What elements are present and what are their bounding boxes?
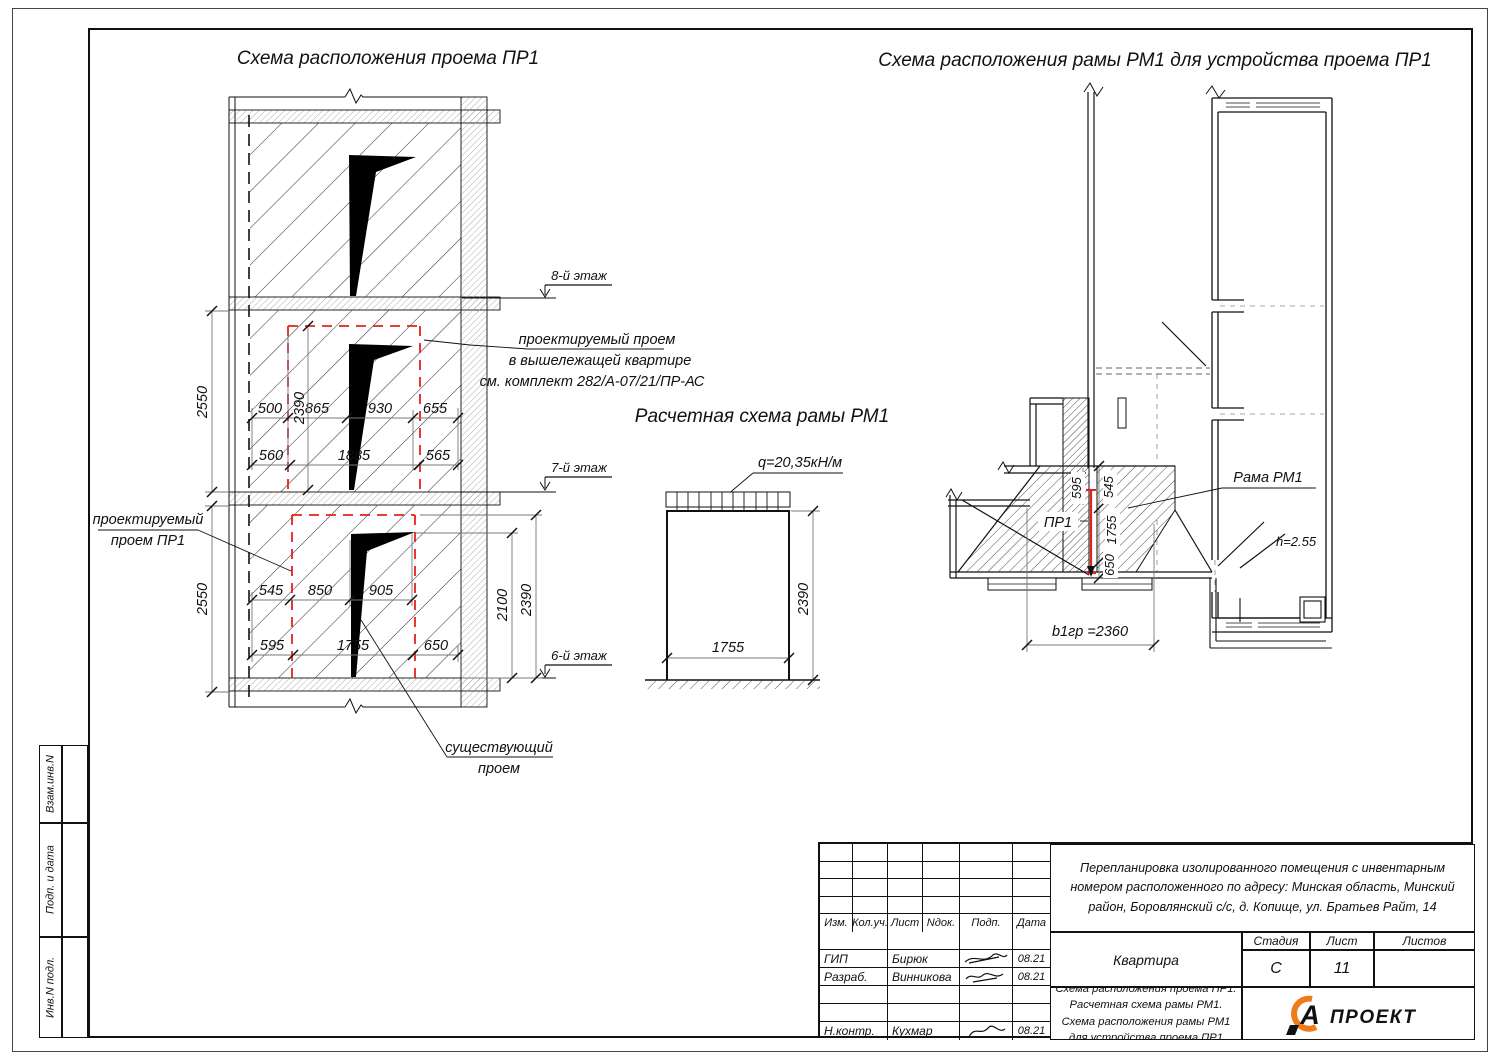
sheets-header: Листов	[1374, 932, 1475, 950]
sign-date: 08.21	[1013, 1022, 1050, 1040]
strip-label: Инв.N подл.	[40, 938, 61, 1037]
col-header: Подп.	[960, 914, 1013, 932]
col-header: Дата	[1013, 914, 1050, 932]
strip-label-box: Инв.N подл.	[39, 937, 62, 1038]
person-name: Винникова	[888, 968, 960, 986]
strip-empty-box	[62, 745, 88, 823]
signature-table: ГИП Бирюк 08.21 Разраб. Винникова 08.21 …	[820, 932, 1050, 1040]
signature	[960, 950, 1013, 968]
logo-letter: А	[1299, 1000, 1320, 1030]
col-header: Кол.уч.	[853, 914, 888, 932]
strip-empty-box	[62, 823, 88, 937]
drawing-sheet: Взам.инв.N Подп. и дата Инв.N подл. text…	[0, 0, 1500, 1061]
title-block: Изм. Кол.уч. Лист Nдок. Подп. Дата ГИП Б…	[818, 842, 1473, 1038]
company-logo: А ПРОЕКТ	[1242, 987, 1475, 1040]
signature	[960, 968, 1013, 986]
sheet-number: 11	[1310, 950, 1374, 987]
col-header: Изм.	[820, 914, 853, 932]
person-name: Кухмар	[888, 1022, 960, 1040]
col-header: Лист	[888, 914, 923, 932]
role: Разраб.	[820, 968, 888, 986]
sign-date: 08.21	[1013, 968, 1050, 986]
signature	[960, 1022, 1013, 1040]
col-header: Nдок.	[923, 914, 960, 932]
sheet-title: Схема расположения проема ПР1. Расчетная…	[1050, 987, 1242, 1040]
person-name: Бирюк	[888, 950, 960, 968]
strip-empty-box	[62, 937, 88, 1038]
stage-header: Стадия	[1242, 932, 1310, 950]
strip-label-box: Подп. и дата	[39, 823, 62, 937]
sign-date: 08.21	[1013, 950, 1050, 968]
role: ГИП	[820, 950, 888, 968]
revision-table: Изм. Кол.уч. Лист Nдок. Подп. Дата	[820, 844, 1050, 932]
stage-value: С	[1242, 950, 1310, 987]
role: Н.контр.	[820, 1022, 888, 1040]
strip-label: Взам.инв.N	[40, 746, 61, 822]
strip-label-box: Взам.инв.N	[39, 745, 62, 823]
logo-text: ПРОЕКТ	[1330, 1007, 1416, 1028]
sheets-total	[1374, 950, 1475, 987]
project-name: Перепланировка изолированного помещения …	[1050, 844, 1475, 932]
logo-graphic: А ПРОЕКТ	[1274, 991, 1444, 1037]
strip-label: Подп. и дата	[40, 824, 61, 936]
sheet-header: Лист	[1310, 932, 1374, 950]
object-name: Квартира	[1050, 932, 1242, 987]
